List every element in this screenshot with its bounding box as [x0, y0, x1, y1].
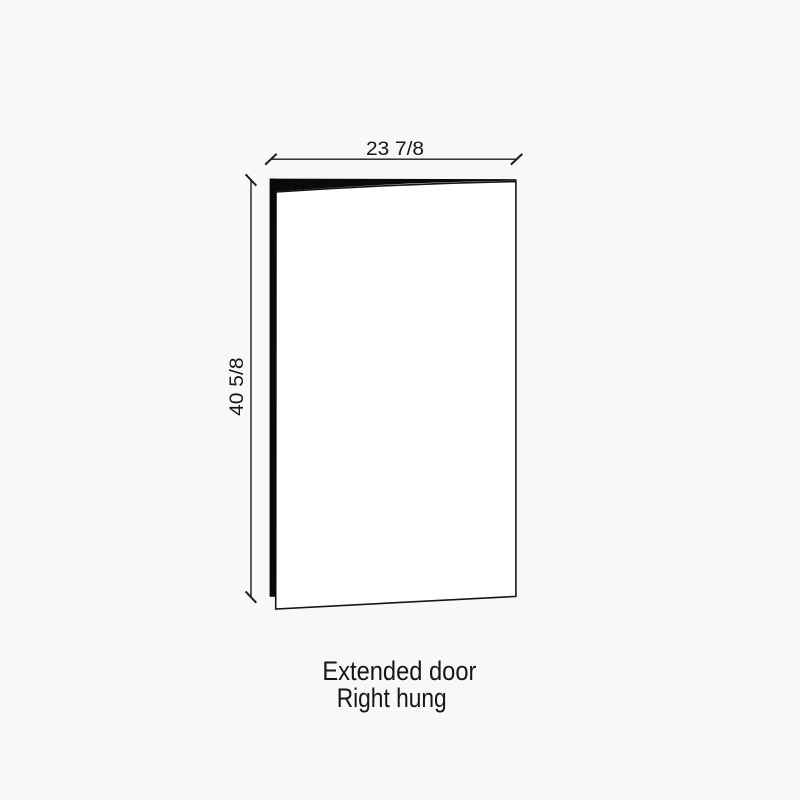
svg-text:23 7/8: 23 7/8 — [366, 138, 424, 160]
svg-text:Extended door: Extended door — [322, 656, 476, 686]
svg-text:40 5/8: 40 5/8 — [226, 357, 248, 416]
svg-text:Right hung: Right hung — [337, 683, 447, 713]
